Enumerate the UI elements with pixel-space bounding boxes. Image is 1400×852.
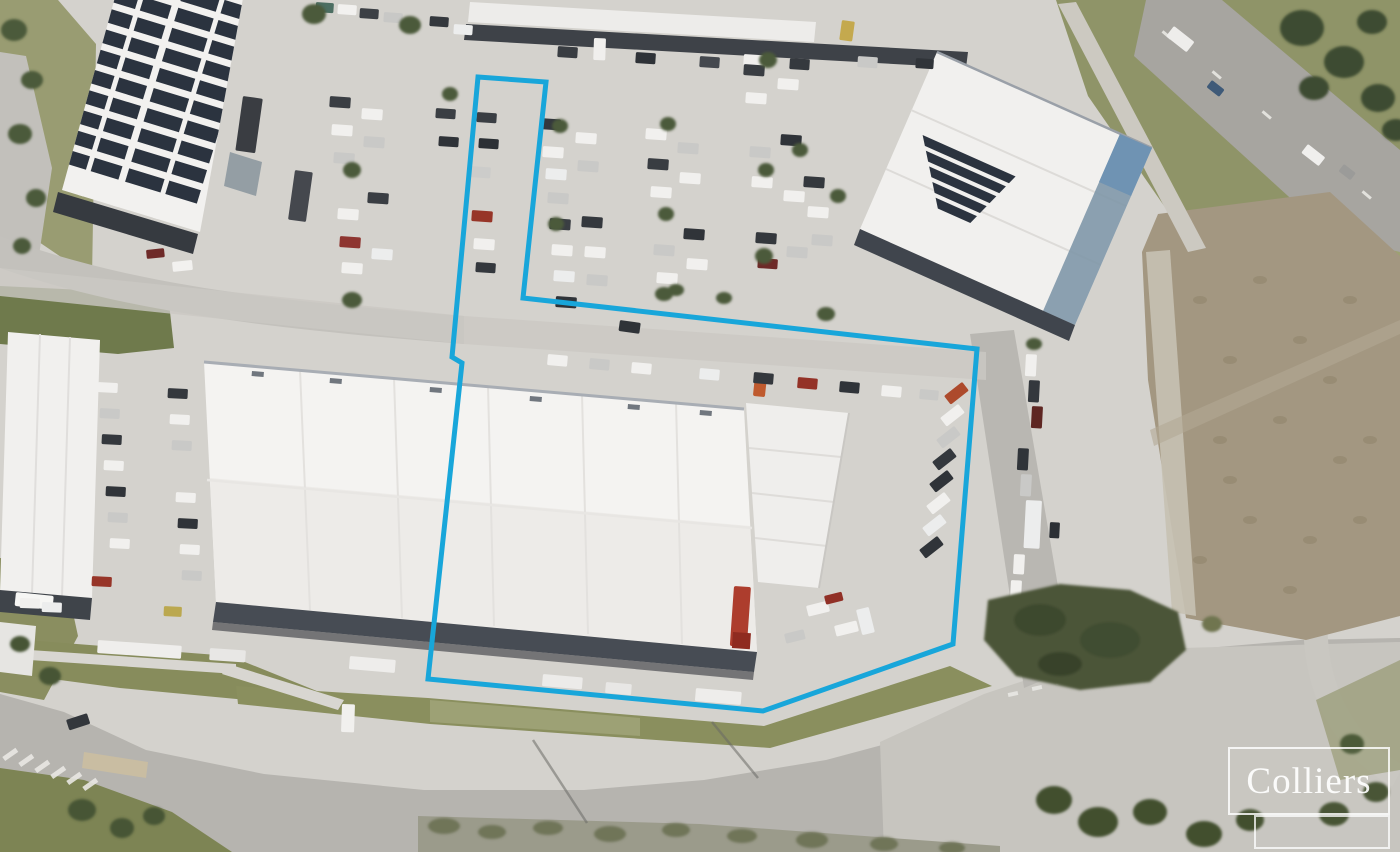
vehicle — [109, 538, 129, 549]
vehicle — [635, 52, 656, 64]
tree — [552, 119, 568, 133]
vehicle — [584, 246, 606, 258]
vehicle — [575, 132, 597, 144]
tree — [594, 826, 626, 842]
vehicle — [811, 234, 833, 246]
vehicle — [471, 210, 493, 222]
tree — [442, 87, 458, 101]
vehicle — [777, 78, 799, 90]
vehicle — [42, 602, 62, 613]
tree — [1026, 338, 1042, 350]
main-warehouse — [204, 362, 757, 680]
vehicle — [699, 56, 720, 68]
vehicle — [341, 704, 355, 732]
tree — [143, 807, 165, 825]
vehicle — [1020, 474, 1032, 497]
vehicle — [339, 236, 361, 248]
tree — [21, 71, 43, 89]
vehicle — [91, 576, 111, 587]
vehicle — [679, 172, 701, 184]
vehicle — [175, 492, 195, 503]
vehicle — [686, 258, 708, 270]
tree — [1357, 10, 1387, 34]
tree — [870, 837, 898, 851]
vehicle — [99, 408, 119, 419]
vehicle — [1025, 354, 1037, 377]
vehicle — [1013, 554, 1025, 575]
vehicle — [783, 190, 805, 202]
vehicle — [473, 238, 495, 250]
vehicle — [209, 648, 246, 662]
tree — [343, 162, 361, 178]
tree — [755, 248, 773, 264]
vehicle — [1031, 406, 1043, 429]
vehicle — [881, 385, 902, 398]
vehicle — [367, 192, 389, 204]
vehicle — [577, 160, 599, 172]
vehicle — [557, 46, 578, 58]
vehicle — [478, 138, 499, 149]
vehicle — [361, 108, 383, 120]
vehicle — [839, 20, 855, 42]
vehicle — [653, 244, 675, 256]
vehicle — [581, 216, 603, 228]
tree — [342, 292, 362, 308]
vehicle — [167, 388, 187, 399]
vehicle — [553, 270, 575, 282]
tree — [660, 117, 676, 131]
vehicle — [438, 136, 459, 147]
tree — [39, 667, 61, 685]
colliers-wordmark: Colliers — [1246, 763, 1371, 800]
vehicle — [169, 414, 189, 425]
vehicle — [105, 486, 125, 497]
tree — [13, 238, 31, 254]
tree — [727, 829, 757, 843]
vehicle — [647, 158, 669, 170]
vehicle — [915, 58, 934, 69]
vehicle — [631, 362, 652, 375]
vehicle — [919, 389, 939, 401]
vehicle — [677, 142, 699, 154]
tree — [1299, 76, 1329, 100]
vehicle — [101, 434, 121, 445]
vehicle — [753, 372, 774, 385]
tree — [10, 636, 30, 652]
vehicle — [589, 358, 610, 371]
vehicle — [786, 246, 808, 258]
tree — [399, 16, 421, 34]
tree — [1280, 10, 1324, 46]
vehicle — [179, 544, 199, 555]
vehicle — [839, 381, 860, 394]
vehicle — [163, 606, 181, 617]
vehicle — [337, 208, 359, 220]
tree — [1078, 807, 1118, 837]
tree — [68, 799, 96, 821]
vehicle — [683, 228, 705, 240]
tree — [1202, 616, 1222, 632]
vehicle — [329, 96, 351, 108]
tree — [26, 189, 46, 207]
vehicle — [807, 206, 829, 218]
tree — [817, 307, 835, 321]
tree — [758, 163, 774, 177]
vehicle — [1023, 500, 1041, 549]
tree — [796, 832, 828, 848]
tree — [658, 207, 674, 221]
vehicle — [371, 248, 393, 260]
vehicle — [475, 262, 496, 273]
vehicle — [146, 248, 165, 259]
vehicle — [20, 598, 40, 609]
tree — [1133, 799, 1167, 825]
tree — [716, 292, 732, 304]
vehicle — [171, 440, 191, 451]
tree — [8, 124, 32, 144]
tree — [1036, 786, 1072, 814]
tree — [548, 217, 564, 231]
vehicle — [857, 56, 878, 68]
vehicle — [453, 24, 473, 35]
dirt-field — [1142, 192, 1400, 640]
vehicle — [476, 112, 497, 123]
vehicle — [743, 64, 765, 76]
vehicle — [593, 38, 606, 60]
vehicle — [547, 192, 569, 204]
vehicle — [331, 124, 353, 136]
vehicle — [177, 518, 197, 529]
vehicle — [755, 232, 777, 244]
vehicle — [172, 260, 193, 272]
colliers-logo-sub-box — [1254, 815, 1390, 849]
tree — [662, 823, 690, 837]
vehicle — [551, 244, 573, 256]
vehicle — [656, 272, 678, 284]
tree — [1361, 84, 1395, 112]
vehicle — [97, 382, 117, 393]
tree — [302, 4, 326, 24]
vehicle — [429, 16, 449, 27]
tree — [759, 52, 777, 68]
vehicle — [337, 4, 357, 15]
vehicle — [341, 262, 363, 274]
vehicle — [699, 368, 720, 381]
vehicle — [650, 186, 672, 198]
vehicle — [547, 354, 568, 367]
vehicle — [181, 570, 201, 581]
vehicle — [1017, 448, 1029, 471]
vehicle — [363, 136, 385, 148]
vehicle — [803, 176, 825, 188]
vehicle — [435, 108, 456, 119]
tree — [428, 818, 460, 834]
vehicle — [1028, 380, 1040, 403]
vehicle — [545, 168, 567, 180]
vehicle — [359, 8, 379, 19]
tree — [792, 143, 808, 157]
colliers-logo: Colliers — [1228, 747, 1390, 815]
vehicle — [749, 146, 771, 158]
tree — [830, 189, 846, 203]
vehicle — [751, 176, 773, 188]
vehicle — [542, 146, 564, 158]
vehicle — [107, 512, 127, 523]
aerial-scene — [0, 0, 1400, 852]
vehicle — [469, 166, 491, 178]
tree — [668, 284, 684, 296]
tree — [478, 825, 506, 839]
vehicle — [586, 274, 608, 286]
tree — [1186, 821, 1222, 847]
vehicle — [797, 377, 818, 390]
tree — [110, 818, 134, 838]
vehicle — [789, 58, 810, 70]
vehicle — [1049, 522, 1060, 539]
tree — [1, 19, 27, 41]
tree — [1324, 46, 1364, 78]
vehicle — [103, 460, 123, 471]
vehicle — [605, 682, 632, 695]
vehicle — [745, 92, 767, 104]
tree — [533, 821, 563, 835]
aerial-photo: Colliers — [0, 0, 1400, 852]
